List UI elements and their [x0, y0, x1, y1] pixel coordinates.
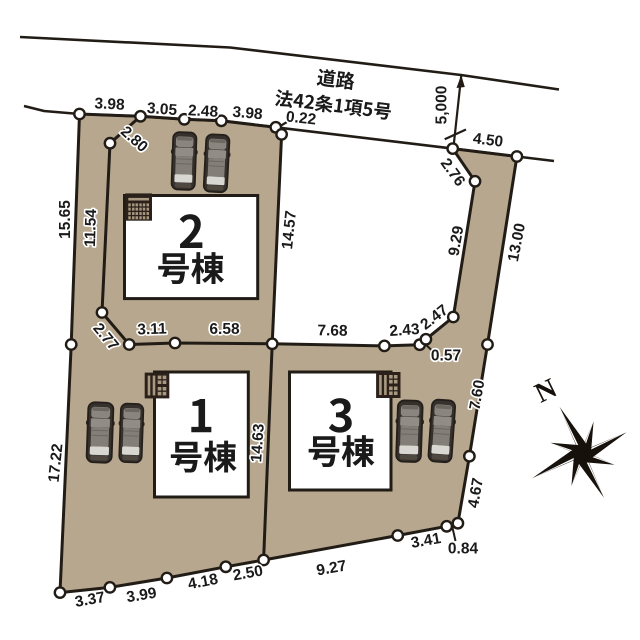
svg-text:6.58: 6.58 — [209, 321, 240, 338]
svg-text:0.84: 0.84 — [448, 541, 479, 558]
svg-text:0.22: 0.22 — [285, 108, 317, 128]
svg-text:0.57: 0.57 — [431, 348, 461, 365]
svg-text:3.11: 3.11 — [137, 320, 167, 338]
svg-text:3.98: 3.98 — [94, 95, 125, 114]
svg-text:2.48: 2.48 — [187, 102, 218, 121]
svg-text:11.54: 11.54 — [82, 208, 100, 247]
svg-text:3.05: 3.05 — [146, 100, 178, 119]
svg-text:3.98: 3.98 — [232, 104, 264, 124]
svg-text:5,000: 5,000 — [434, 86, 451, 125]
svg-text:14.63: 14.63 — [248, 423, 268, 463]
svg-text:7.68: 7.68 — [317, 322, 348, 340]
svg-text:15.65: 15.65 — [57, 200, 74, 239]
svg-text:2.43: 2.43 — [389, 321, 421, 340]
